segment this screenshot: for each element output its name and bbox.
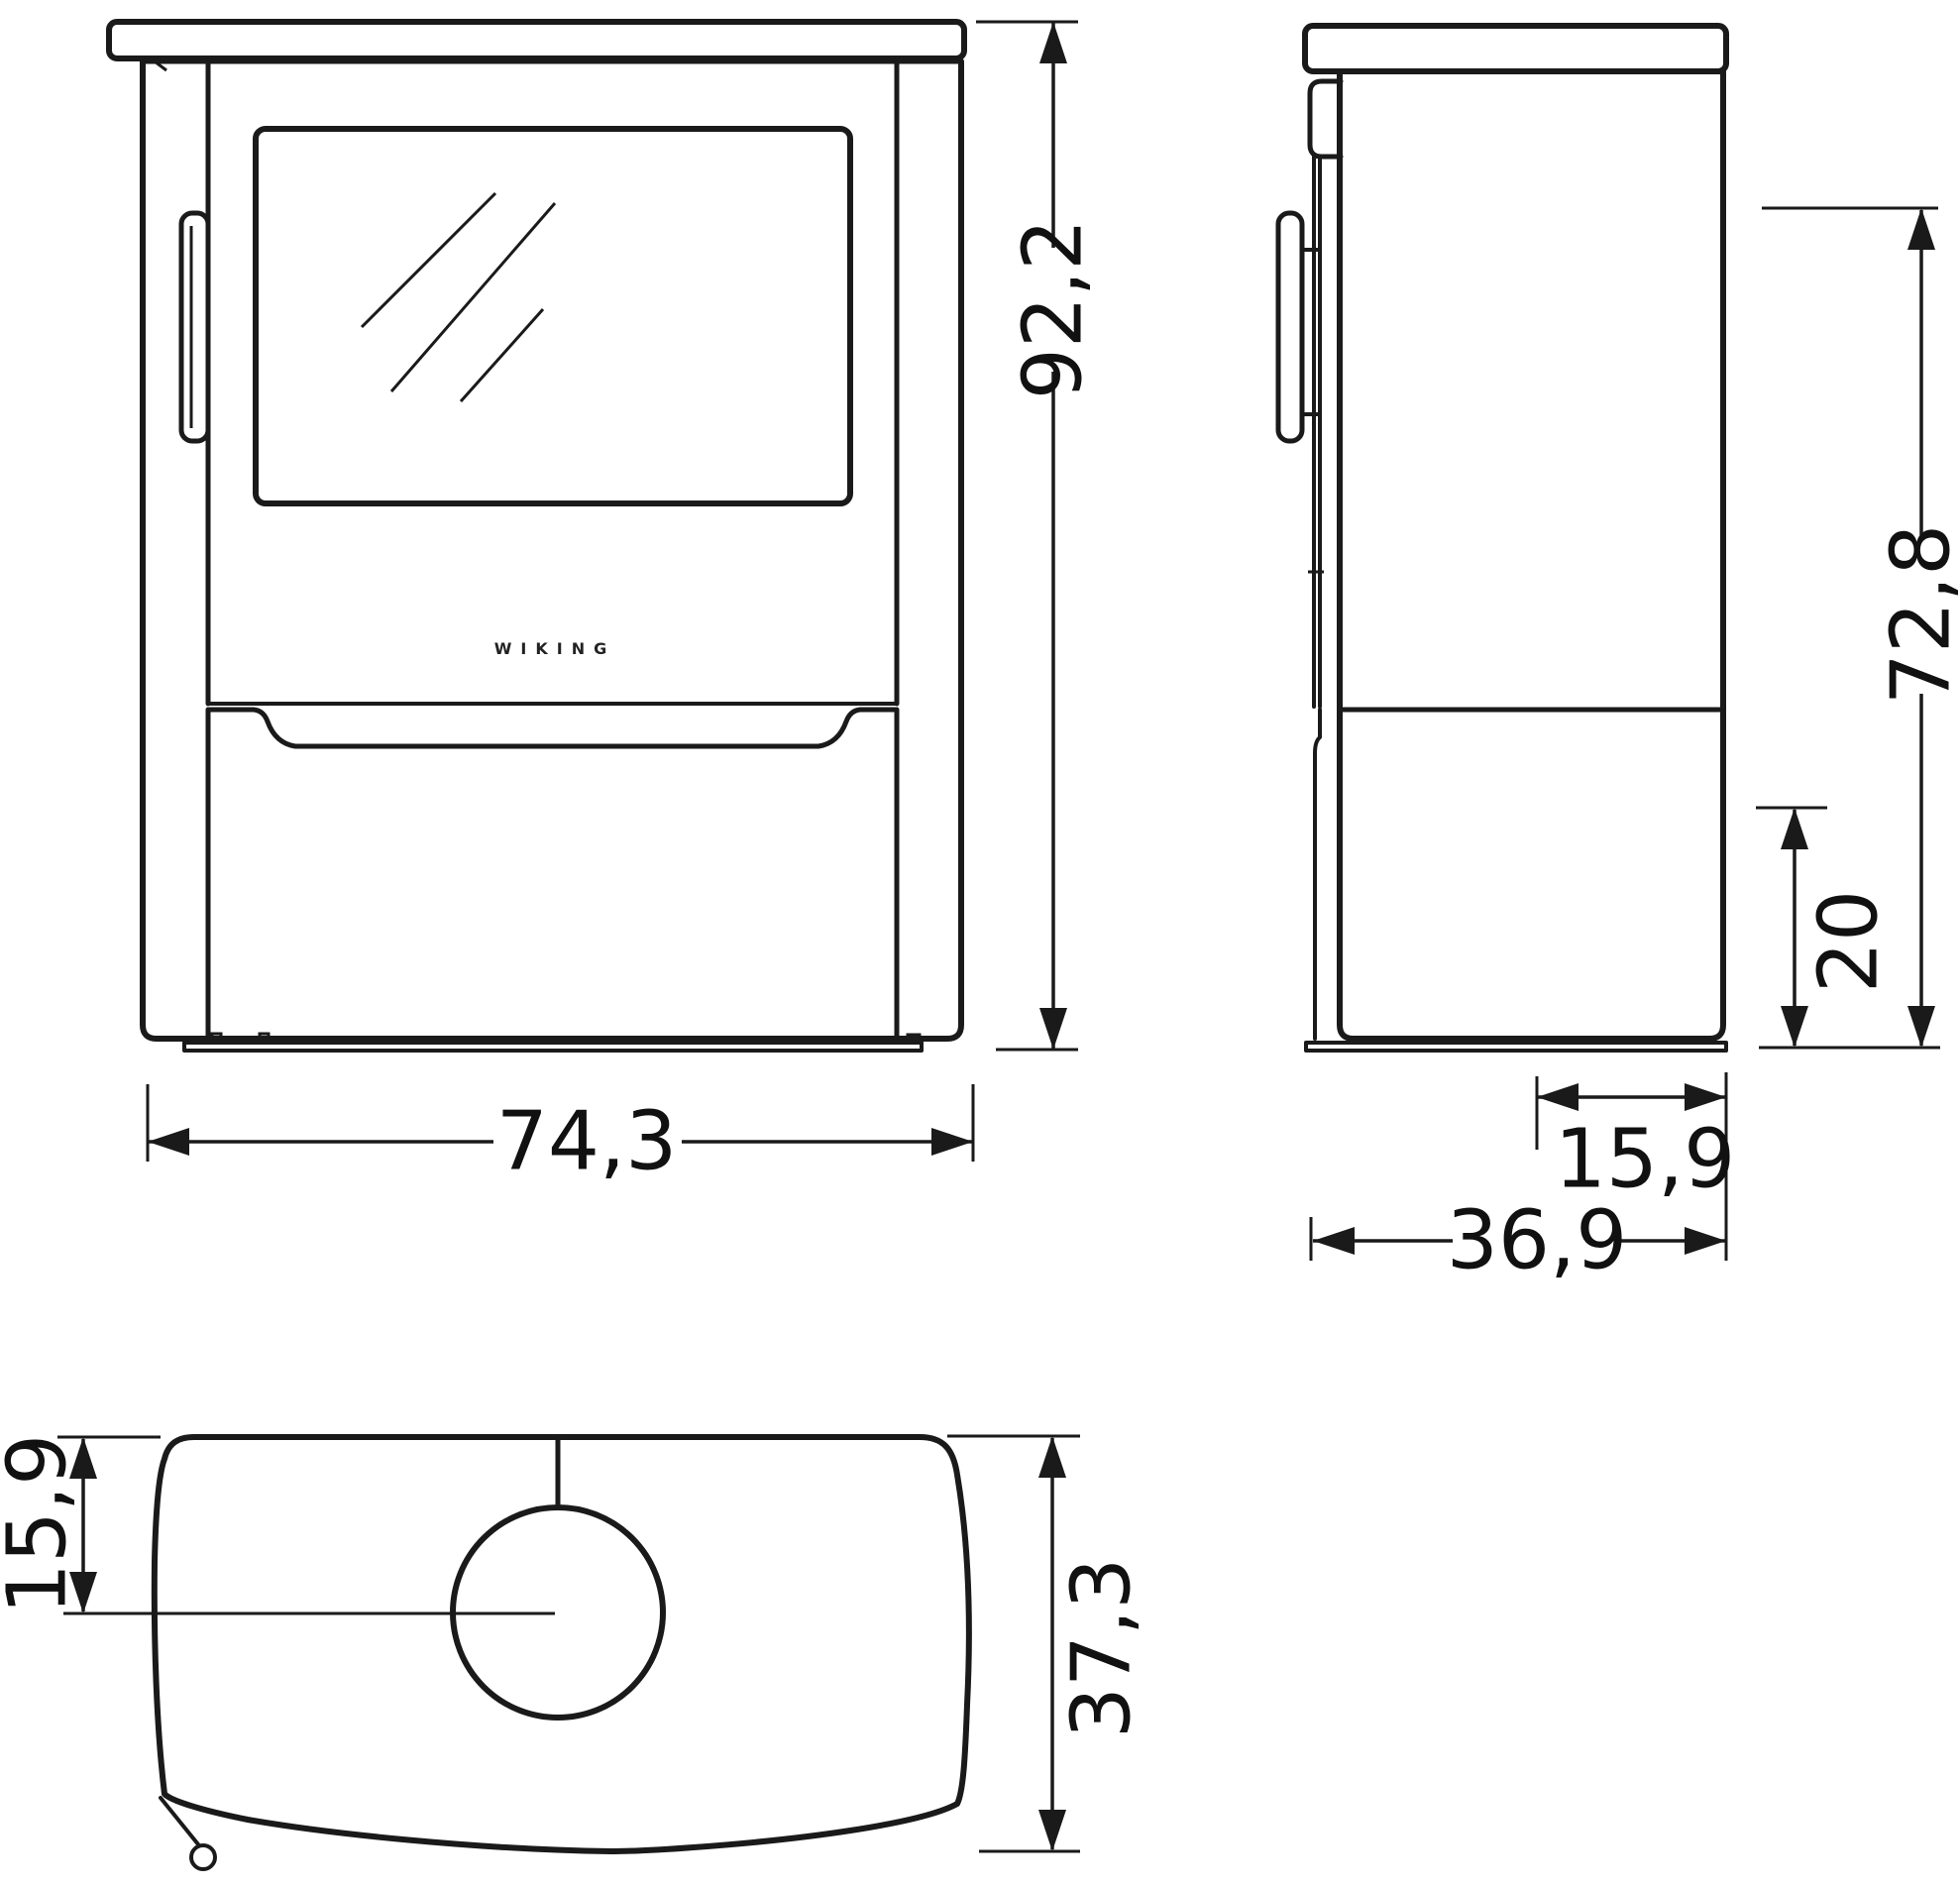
top-view — [63, 1437, 969, 1869]
arrow-up-icon — [1039, 22, 1067, 63]
dim-side-outlet-label: 72,8 — [1875, 524, 1960, 706]
side-body-outline — [1340, 71, 1723, 1039]
window-glass — [256, 129, 850, 503]
arrow-right-icon — [931, 1128, 973, 1156]
side-door-tab — [1310, 81, 1341, 157]
arrow-left-icon — [148, 1128, 189, 1156]
arrow-up-icon — [1781, 808, 1808, 849]
stove-dimension-diagram: WIKING 92,2 74,3 — [0, 0, 1960, 1888]
arrow-down-icon — [1781, 1006, 1808, 1048]
arrow-right-icon — [1685, 1227, 1726, 1255]
front-top-plate — [109, 22, 964, 58]
grate-pull-ring — [191, 1845, 215, 1869]
front-door-handle — [181, 213, 208, 441]
side-drawer-slab — [1315, 710, 1320, 1039]
dim-side-lower-label: 20 — [1802, 890, 1897, 993]
front-base-plate — [184, 1043, 922, 1051]
top-plate-outline — [155, 1437, 969, 1851]
side-door-handle — [1278, 213, 1302, 441]
arrow-left-icon — [1313, 1227, 1355, 1255]
dim-top-flue-offset: 15,9 — [0, 1434, 161, 1615]
side-door-slab — [1314, 157, 1320, 707]
dim-front-height: 92,2 — [976, 22, 1101, 1050]
arrow-down-icon — [1907, 1006, 1935, 1048]
arrow-left-icon — [1537, 1083, 1579, 1111]
front-view: WIKING — [109, 22, 964, 1051]
dim-side-flue-label: 15,9 — [1555, 1113, 1736, 1207]
dimension-drawing: WIKING 92,2 74,3 — [0, 0, 1960, 1888]
arrow-right-icon — [1685, 1083, 1726, 1111]
front-drawer-recess — [210, 710, 895, 746]
dim-top-depth: 37,3 — [947, 1436, 1149, 1851]
dim-front-height-extension-lines — [976, 22, 1078, 1050]
dim-side-depth: 36,9 — [1311, 1194, 1726, 1288]
arrow-up-icon — [1038, 1436, 1066, 1478]
glass-reflection-lines — [362, 193, 555, 401]
side-top-plate — [1305, 26, 1726, 71]
dim-top-depth-label: 37,3 — [1055, 1558, 1149, 1739]
brand-logo: WIKING — [494, 639, 615, 658]
side-handle-bracket — [1302, 250, 1320, 414]
arrow-up-icon — [1907, 208, 1935, 250]
front-drawer-edges — [208, 710, 897, 1039]
dim-side-depth-label: 36,9 — [1447, 1194, 1628, 1288]
dim-front-width: 74,3 — [148, 1084, 973, 1189]
arrow-down-icon — [1038, 1810, 1066, 1851]
front-door-edges — [208, 61, 897, 704]
side-base-plate — [1306, 1043, 1726, 1051]
side-view — [1278, 26, 1726, 1051]
dim-front-width-label: 74,3 — [496, 1095, 678, 1189]
arrow-down-icon — [1039, 1008, 1067, 1050]
dim-front-height-label: 92,2 — [1007, 219, 1101, 400]
dim-top-flue-label: 15,9 — [0, 1434, 85, 1615]
